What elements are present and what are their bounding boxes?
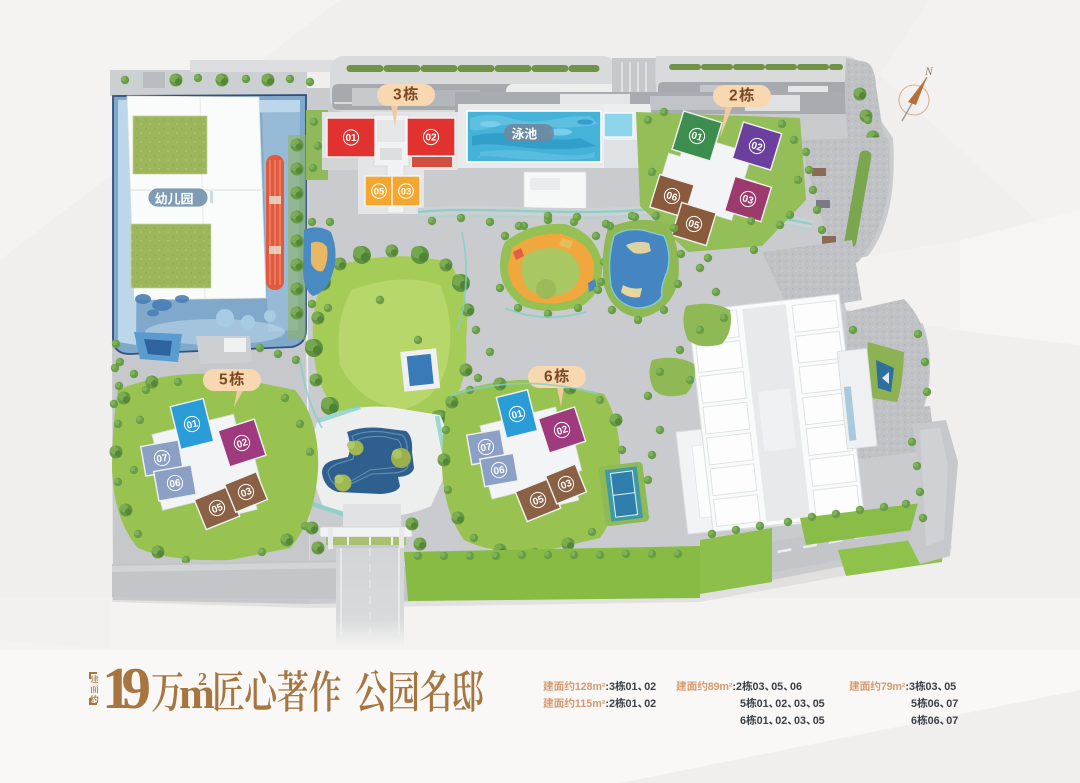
svg-text:115m²: 115m² [575, 698, 606, 710]
svg-text::3: :3 [905, 681, 915, 693]
svg-text:6: 6 [544, 369, 553, 386]
svg-text:6: 6 [740, 715, 746, 727]
svg-text:5: 5 [911, 698, 917, 710]
svg-text:05: 05 [771, 681, 783, 693]
svg-text:128m²: 128m² [575, 681, 606, 693]
svg-text:3: 3 [393, 87, 402, 104]
svg-text:6: 6 [911, 715, 917, 727]
svg-text:2: 2 [729, 88, 738, 105]
svg-text:02: 02 [425, 133, 437, 144]
svg-text:05: 05 [813, 715, 825, 727]
svg-text:03: 03 [753, 681, 765, 693]
svg-text:07: 07 [946, 698, 958, 710]
svg-text::2: :2 [732, 681, 742, 693]
svg-text:02: 02 [775, 698, 787, 710]
svg-text:07: 07 [946, 715, 958, 727]
svg-text:5: 5 [219, 372, 228, 389]
svg-text:05: 05 [813, 698, 825, 710]
svg-text:01: 01 [757, 715, 769, 727]
svg-text:05: 05 [944, 681, 956, 693]
svg-text:03: 03 [794, 698, 806, 710]
svg-text:5: 5 [740, 698, 746, 710]
svg-text::2: :2 [605, 698, 615, 710]
svg-text:02: 02 [775, 715, 787, 727]
svg-text:01: 01 [757, 698, 769, 710]
svg-text:19: 19 [102, 655, 151, 721]
svg-text:2: 2 [198, 669, 207, 689]
svg-text:06: 06 [928, 715, 940, 727]
svg-text:79m²: 79m² [881, 681, 906, 693]
svg-text:01: 01 [345, 133, 357, 144]
svg-text:02: 02 [644, 681, 656, 693]
svg-text:05: 05 [374, 186, 385, 197]
svg-text:01: 01 [626, 698, 638, 710]
svg-text:06: 06 [928, 698, 940, 710]
svg-text:m: m [179, 671, 215, 718]
svg-text::3: :3 [605, 681, 615, 693]
svg-text:02: 02 [644, 698, 656, 710]
svg-text:89m²: 89m² [708, 681, 733, 693]
svg-text:N: N [924, 66, 934, 78]
svg-text:03: 03 [926, 681, 938, 693]
svg-text:03: 03 [794, 715, 806, 727]
svg-text:06: 06 [790, 681, 802, 693]
svg-text:03: 03 [401, 186, 412, 197]
svg-text:01: 01 [626, 681, 638, 693]
